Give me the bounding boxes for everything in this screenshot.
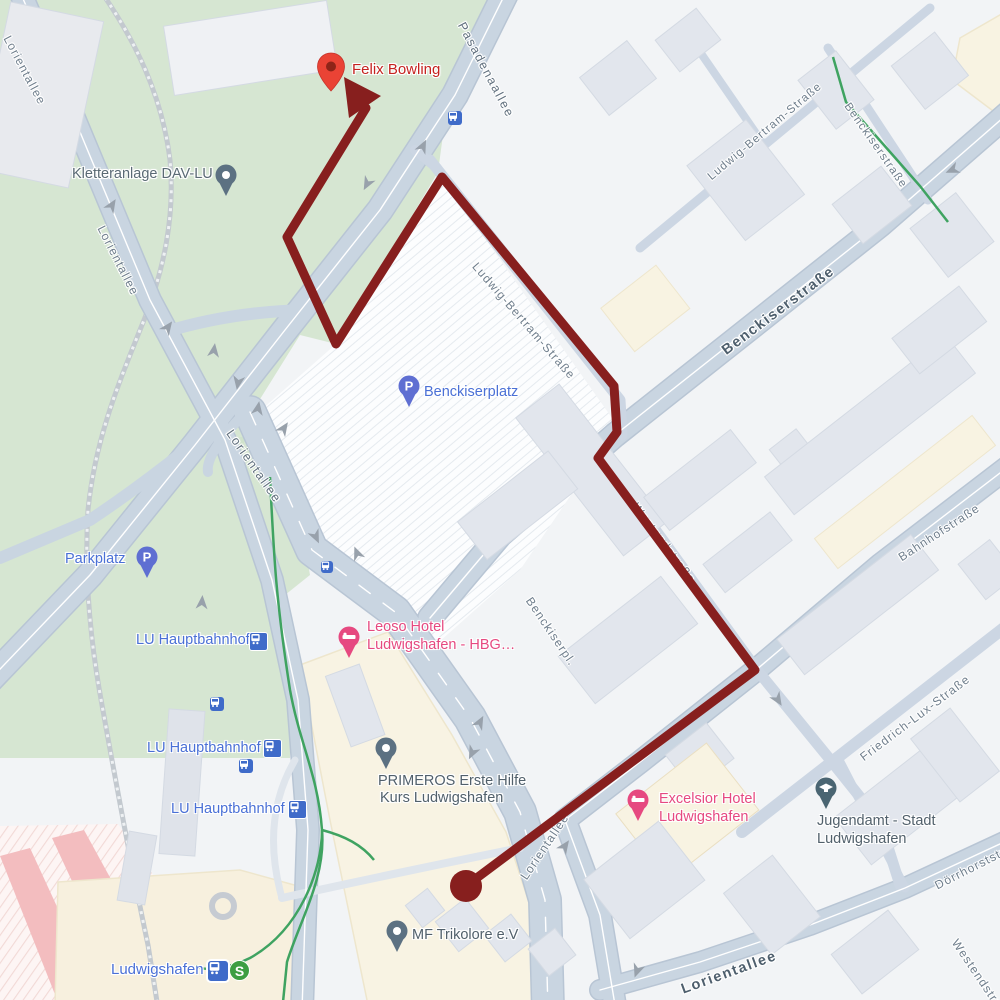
hotel-pin-excelsior[interactable] bbox=[625, 788, 651, 822]
rail-station-icon[interactable] bbox=[249, 632, 268, 651]
poi-label-primeros-1[interactable]: PRIMEROS Erste Hilfe bbox=[378, 773, 526, 791]
poi-label-felix-bowling[interactable]: Felix Bowling bbox=[352, 61, 440, 79]
bus-stop-icon[interactable] bbox=[321, 561, 333, 573]
jugendamt-pin[interactable] bbox=[813, 776, 839, 810]
poi-label-kletteranlage[interactable]: Kletteranlage DAV-LU bbox=[72, 166, 213, 184]
poi-label-benckiserplatz[interactable]: Benckiserplatz bbox=[424, 384, 518, 402]
poi-label-primeros-2[interactable]: Kurs Ludwigshafen bbox=[380, 790, 503, 808]
rail-station-icon[interactable] bbox=[263, 739, 282, 758]
kletteranlage-pin[interactable] bbox=[213, 163, 239, 197]
primeros-pin[interactable] bbox=[373, 736, 399, 770]
mf-trikolore-pin[interactable] bbox=[384, 919, 410, 953]
svg-text:P: P bbox=[405, 379, 414, 394]
poi-label-parkplatz[interactable]: Parkplatz bbox=[65, 551, 125, 569]
parking-pin-benckiserplatz[interactable]: P bbox=[396, 374, 422, 408]
poi-label-excelsior-2[interactable]: Ludwigshafen bbox=[659, 809, 749, 827]
destination-pin[interactable] bbox=[316, 52, 346, 92]
svg-text:P: P bbox=[143, 550, 152, 565]
bus-stop-icon[interactable] bbox=[210, 697, 224, 711]
hotel-pin-leoso[interactable] bbox=[336, 625, 362, 659]
poi-label-leoso-1[interactable]: Leoso Hotel bbox=[367, 619, 444, 637]
bus-stop-icon[interactable] bbox=[239, 759, 253, 773]
sbahn-icon[interactable]: S bbox=[229, 960, 250, 981]
poi-label-ludwigshafen-station[interactable]: Ludwigshafen bbox=[111, 961, 204, 979]
poi-label-lu-hauptbahnhof-2[interactable]: LU Hauptbahnhof bbox=[147, 740, 261, 758]
train-station-icon[interactable] bbox=[206, 959, 230, 983]
poi-label-mf-trikolore[interactable]: MF Trikolore e.V bbox=[412, 927, 518, 945]
parking-pin-parkplatz[interactable]: P bbox=[134, 545, 160, 579]
poi-label-jugendamt-1[interactable]: Jugendamt - Stadt bbox=[817, 813, 936, 831]
poi-label-jugendamt-2[interactable]: Ludwigshafen bbox=[817, 831, 907, 849]
poi-label-leoso-2[interactable]: Ludwigshafen - HBG… bbox=[367, 637, 515, 655]
map-canvas[interactable]: Lorientallee Lorientallee Lorientallee L… bbox=[0, 0, 1000, 1000]
poi-label-lu-hauptbahnhof-3[interactable]: LU Hauptbahnhof bbox=[171, 801, 285, 819]
bus-stop-icon[interactable] bbox=[448, 111, 462, 125]
poi-label-excelsior-1[interactable]: Excelsior Hotel bbox=[659, 791, 756, 809]
rail-station-icon[interactable] bbox=[288, 800, 307, 819]
poi-label-lu-hauptbahnhof-1[interactable]: LU Hauptbahnhof bbox=[136, 632, 250, 650]
